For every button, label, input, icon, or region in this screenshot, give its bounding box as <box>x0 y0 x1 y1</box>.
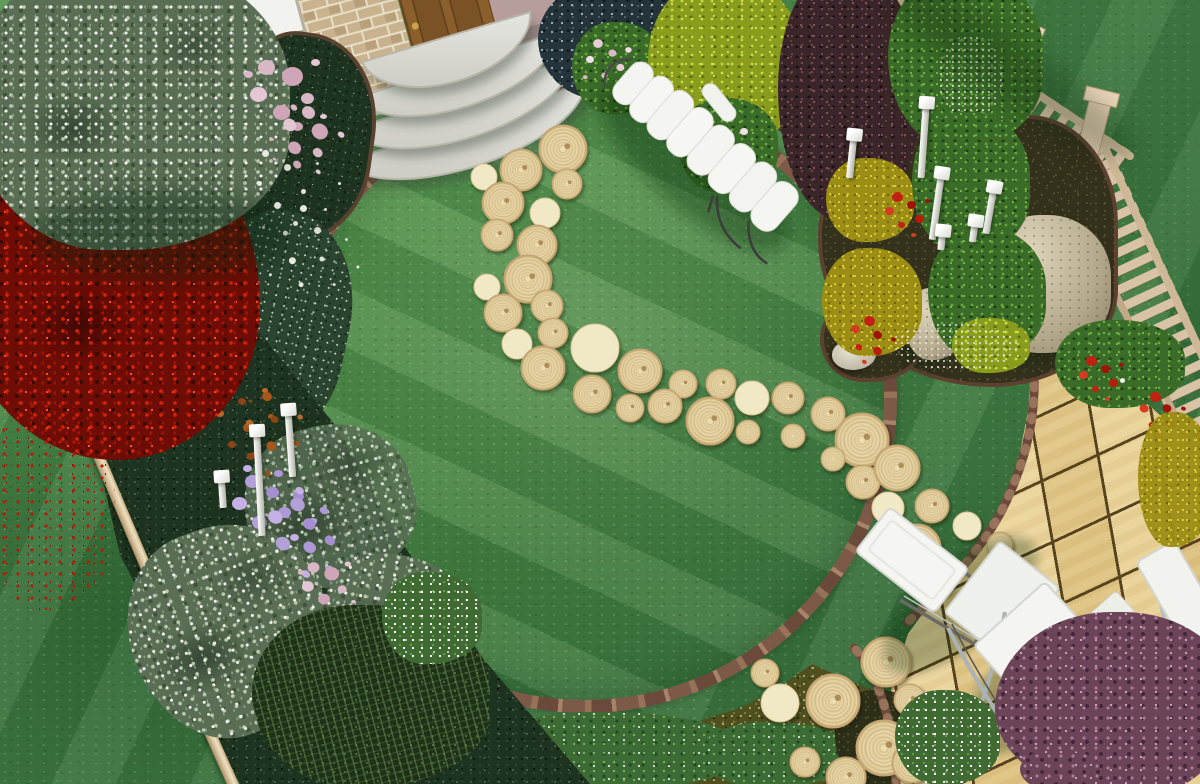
chaise-lounge <box>576 24 834 277</box>
garden-aerial-render <box>0 0 1200 784</box>
furniture-layer <box>0 0 1200 784</box>
